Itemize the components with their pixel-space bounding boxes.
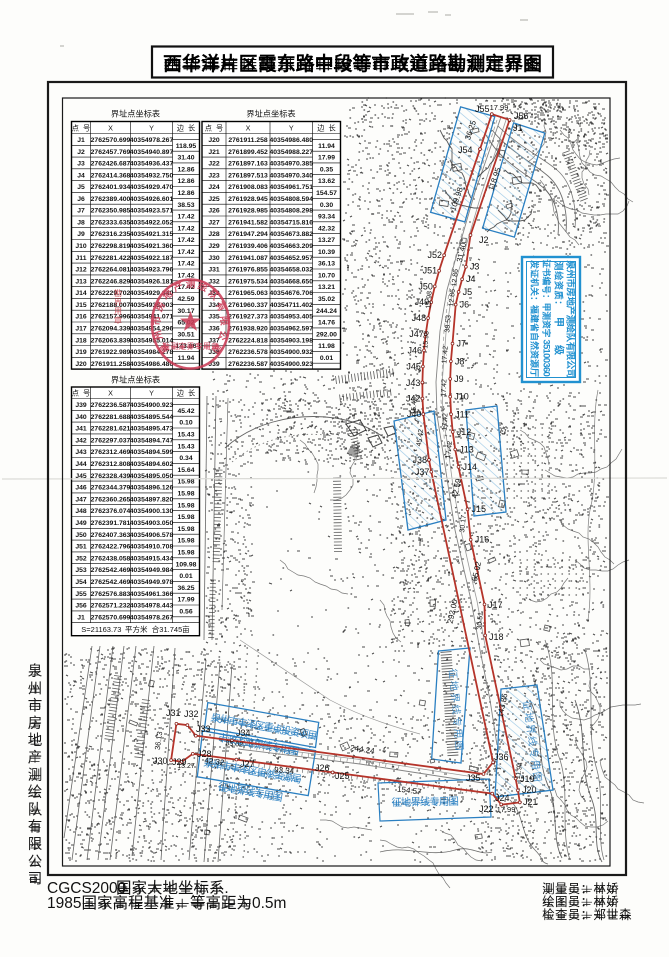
svg-text:118.95: 118.95	[176, 143, 197, 150]
svg-text:2762264.081: 2762264.081	[91, 267, 131, 274]
svg-text:J26: J26	[208, 208, 220, 215]
svg-text:J21: J21	[523, 797, 538, 807]
svg-text:17.99: 17.99	[497, 805, 516, 814]
svg-text:292.00: 292.00	[316, 331, 337, 338]
svg-text:X: X	[108, 388, 113, 397]
svg-text:边: 边	[177, 123, 184, 132]
svg-text:2762281.621: 2762281.621	[91, 426, 131, 433]
svg-text:福: 福	[530, 304, 541, 314]
svg-text:限: 限	[217, 316, 229, 327]
svg-text:长: 长	[328, 123, 335, 132]
svg-text:J14: J14	[463, 462, 478, 472]
svg-text:2762426.687: 2762426.687	[91, 161, 131, 168]
svg-text:界: 界	[114, 298, 122, 307]
svg-text:J46: J46	[407, 345, 422, 355]
svg-text:：: ：	[530, 296, 540, 305]
svg-text:40354970.340: 40354970.340	[270, 172, 314, 179]
svg-text:J2: J2	[479, 235, 489, 245]
svg-text:40354926.181: 40354926.181	[130, 278, 174, 285]
svg-text:2762312.808: 2762312.808	[91, 461, 131, 468]
svg-text:40354978.267: 40354978.267	[130, 614, 174, 621]
svg-text:J42: J42	[75, 437, 87, 444]
svg-text:J11: J11	[455, 409, 469, 419]
svg-text:2761941.582: 2761941.582	[228, 219, 268, 226]
svg-text:11.98: 11.98	[318, 343, 335, 350]
svg-text:40354949.984: 40354949.984	[130, 567, 174, 574]
svg-text:15.43: 15.43	[177, 443, 194, 450]
svg-text:17.42: 17.42	[177, 249, 194, 256]
svg-text:J43: J43	[75, 449, 87, 456]
svg-text:J33: J33	[196, 724, 211, 734]
svg-text:J8: J8	[455, 356, 465, 366]
svg-text:建: 建	[530, 313, 541, 323]
svg-text:测: 测	[186, 279, 196, 291]
svg-text:2761928.985: 2761928.985	[228, 208, 268, 215]
svg-text:2762298.819: 2762298.819	[91, 243, 131, 250]
svg-text:40354910.708: 40354910.708	[130, 544, 174, 551]
svg-text:40354921.360: 40354921.360	[130, 243, 174, 250]
svg-text:10.39: 10.39	[318, 249, 335, 256]
svg-text:边: 边	[317, 123, 324, 132]
svg-text:司: 司	[566, 369, 576, 378]
svg-text:S=21163.73: S=21163.73	[81, 625, 121, 634]
svg-text:2762542.469: 2762542.469	[91, 579, 131, 586]
svg-text:坐: 坐	[271, 110, 279, 119]
svg-text:J9: J9	[77, 231, 85, 238]
svg-text:J44: J44	[75, 461, 87, 468]
svg-text:12.86: 12.86	[177, 178, 194, 185]
svg-text:15.98: 15.98	[177, 550, 194, 557]
svg-text:2761976.855: 2761976.855	[228, 267, 268, 274]
svg-text:米: 米	[140, 624, 148, 634]
svg-text:2762457.769: 2762457.769	[91, 149, 131, 156]
svg-text:J9: J9	[454, 374, 464, 384]
svg-text:J39: J39	[75, 402, 87, 409]
svg-text:J20: J20	[522, 785, 537, 795]
svg-text:章: 章	[114, 315, 122, 325]
svg-text:甲: 甲	[553, 317, 565, 327]
svg-text:0.56: 0.56	[179, 609, 192, 616]
svg-text:J48: J48	[412, 313, 427, 323]
svg-text:J2: J2	[77, 149, 85, 156]
svg-text:J22: J22	[479, 804, 494, 814]
svg-text:30.17: 30.17	[177, 308, 194, 315]
svg-text:J22: J22	[208, 161, 220, 168]
svg-text:甲: 甲	[542, 303, 552, 312]
svg-text:点: 点	[127, 376, 135, 385]
svg-text:X: X	[246, 123, 251, 132]
svg-text:2762407.363: 2762407.363	[91, 532, 131, 539]
svg-text:2762297.037: 2762297.037	[91, 437, 131, 444]
svg-text:1985: 1985	[47, 895, 81, 912]
svg-text:15.64: 15.64	[177, 467, 194, 474]
svg-text:40354922.052: 40354922.052	[130, 219, 174, 226]
svg-text:31.745: 31.745	[159, 625, 182, 634]
svg-text:J20: J20	[75, 361, 87, 368]
svg-text:40354932.750: 40354932.750	[130, 172, 174, 179]
svg-text:X: X	[108, 123, 113, 132]
svg-text:40354953.405: 40354953.405	[270, 314, 314, 321]
svg-text:40354894.602: 40354894.602	[130, 461, 174, 468]
svg-text:12.86: 12.86	[177, 190, 194, 197]
svg-text:点: 点	[72, 123, 79, 132]
svg-text:机: 机	[530, 278, 541, 287]
svg-text:2761927.373: 2761927.373	[228, 314, 268, 321]
svg-text:J51: J51	[75, 544, 87, 551]
svg-text:93.34: 93.34	[274, 765, 295, 775]
svg-text:J7: J7	[77, 208, 85, 215]
svg-text:15.98: 15.98	[177, 514, 194, 521]
svg-text:42.32: 42.32	[318, 225, 335, 232]
svg-text:35.02: 35.02	[318, 296, 335, 303]
svg-text:0.10: 0.10	[179, 420, 192, 427]
svg-text:2761947.294: 2761947.294	[228, 231, 268, 238]
svg-text:40354711.402: 40354711.402	[270, 302, 313, 309]
svg-text:J36: J36	[494, 752, 509, 762]
svg-text:J28: J28	[208, 231, 220, 238]
svg-text:点: 点	[205, 123, 212, 132]
svg-text:40354922.187: 40354922.187	[130, 255, 174, 262]
svg-text:J31: J31	[166, 708, 181, 718]
svg-text:15.43: 15.43	[411, 397, 419, 415]
svg-text:40354949.978: 40354949.978	[130, 579, 174, 586]
svg-text:J12: J12	[75, 267, 87, 274]
svg-text:15.98: 15.98	[177, 538, 194, 545]
svg-text:2761975.534: 2761975.534	[228, 278, 268, 285]
svg-text:J23: J23	[208, 172, 220, 179]
svg-text:J40: J40	[75, 414, 87, 421]
svg-text:2761922.989: 2761922.989	[91, 349, 131, 356]
svg-text:2762391.781: 2762391.781	[91, 520, 131, 527]
svg-text:15.98: 15.98	[177, 491, 194, 498]
svg-text:154.57: 154.57	[316, 190, 337, 197]
svg-text:J38: J38	[412, 455, 427, 465]
svg-text:40354903.050: 40354903.050	[130, 520, 174, 527]
svg-text:40354652.957: 40354652.957	[270, 255, 314, 262]
svg-text:J17: J17	[488, 600, 503, 610]
svg-text:40354986.480: 40354986.480	[130, 361, 174, 368]
svg-text:J10: J10	[75, 243, 87, 250]
svg-text:J50: J50	[418, 281, 433, 291]
svg-text:J55: J55	[75, 591, 87, 598]
svg-text:号: 号	[216, 123, 223, 132]
svg-text:址: 址	[255, 109, 263, 119]
svg-text:点: 点	[72, 388, 79, 397]
svg-text:2762188.007: 2762188.007	[91, 302, 131, 309]
svg-text:J5: J5	[77, 184, 85, 191]
svg-text:源: 源	[530, 358, 541, 368]
svg-text:J8: J8	[77, 219, 85, 226]
svg-text:40354926.601: 40354926.601	[130, 196, 174, 203]
svg-text:40354895.544: 40354895.544	[130, 414, 174, 421]
svg-text:征: 征	[520, 700, 533, 712]
svg-text:40354903.198: 40354903.198	[270, 337, 314, 344]
svg-text:J43: J43	[406, 378, 421, 388]
svg-text:2762316.235: 2762316.235	[91, 231, 131, 238]
svg-text:勘: 勘	[114, 289, 122, 298]
svg-text:Y: Y	[289, 123, 294, 132]
svg-text:17.42: 17.42	[442, 413, 450, 431]
svg-text:号: 号	[83, 388, 90, 397]
svg-text:40354896.126: 40354896.126	[130, 485, 174, 492]
svg-text:：: ：	[542, 294, 552, 303]
svg-text:40354897.820: 40354897.820	[130, 496, 174, 503]
svg-text:2762360.265: 2762360.265	[91, 496, 131, 503]
svg-text:J30: J30	[153, 756, 168, 766]
svg-text:93.34: 93.34	[318, 214, 335, 221]
svg-text:2762571.232: 2762571.232	[91, 603, 131, 610]
svg-text:J11: J11	[76, 255, 87, 262]
svg-text:2761899.452: 2761899.452	[228, 149, 268, 156]
svg-text:11.94: 11.94	[178, 355, 195, 362]
svg-text:10.70: 10.70	[318, 272, 335, 279]
svg-text:40354929.470: 40354929.470	[130, 184, 174, 191]
svg-text:J54: J54	[75, 579, 87, 586]
svg-text:40354978.443: 40354978.443	[130, 603, 174, 610]
svg-text:亩: 亩	[182, 624, 190, 634]
svg-text:自: 自	[530, 332, 541, 341]
svg-text:J15: J15	[75, 302, 87, 309]
svg-text:17.99: 17.99	[318, 155, 335, 162]
svg-text:J17: J17	[75, 325, 87, 332]
svg-text:17.42: 17.42	[441, 379, 449, 397]
svg-text:Y: Y	[149, 123, 154, 132]
svg-text:地: 地	[447, 680, 461, 691]
svg-text:证: 证	[542, 259, 552, 268]
svg-text:0.30: 0.30	[320, 202, 333, 209]
svg-text:J51: J51	[423, 266, 438, 276]
svg-text:J6: J6	[460, 300, 470, 310]
svg-text:J12: J12	[457, 427, 472, 437]
svg-text:17.99: 17.99	[490, 103, 509, 112]
svg-text:有: 有	[566, 342, 577, 351]
svg-text:J13: J13	[75, 278, 87, 285]
svg-text:J15: J15	[472, 504, 487, 514]
svg-text:J24: J24	[208, 184, 220, 191]
svg-text:长: 长	[188, 123, 195, 132]
svg-text:J21: J21	[208, 149, 220, 156]
svg-text:40354961.751: 40354961.751	[270, 184, 314, 191]
svg-text:号: 号	[542, 285, 552, 294]
svg-text:J4: J4	[77, 172, 85, 179]
svg-text:标: 标	[279, 109, 287, 119]
svg-text:2761938.920: 2761938.920	[228, 325, 268, 332]
svg-text:J52: J52	[75, 555, 87, 562]
svg-text:40354900.923: 40354900.923	[270, 361, 314, 368]
svg-text:2761897.513: 2761897.513	[228, 172, 268, 179]
svg-text:40354894.599: 40354894.599	[130, 449, 174, 456]
svg-text:厅: 厅	[530, 368, 540, 377]
svg-text:11.94: 11.94	[318, 143, 335, 150]
svg-text:Y: Y	[149, 388, 154, 397]
svg-text:用: 用	[529, 759, 541, 770]
svg-text:40354676.706: 40354676.706	[270, 290, 314, 297]
svg-text:J3: J3	[470, 262, 480, 272]
svg-text:J10: J10	[454, 392, 469, 402]
svg-text:40354915.434: 40354915.434	[130, 555, 174, 562]
svg-text:0: 0	[541, 372, 552, 377]
svg-text:J16: J16	[75, 314, 87, 321]
svg-text:40354808.594: 40354808.594	[270, 196, 314, 203]
svg-text:图: 图	[452, 740, 465, 751]
svg-text:市: 市	[566, 279, 577, 288]
svg-text:17.42: 17.42	[177, 225, 194, 232]
svg-text:36.13: 36.13	[318, 261, 335, 268]
svg-text:109.98: 109.98	[176, 561, 197, 568]
svg-text:40354900.923: 40354900.923	[130, 402, 174, 409]
svg-text:2762246.829: 2762246.829	[91, 278, 131, 285]
svg-text:2762063.839: 2762063.839	[91, 337, 131, 344]
svg-text:J29: J29	[208, 243, 220, 250]
svg-text:13.62: 13.62	[318, 178, 335, 185]
svg-text:J14: J14	[75, 290, 87, 297]
svg-text:31.40: 31.40	[177, 155, 194, 162]
svg-text:州: 州	[566, 268, 576, 278]
svg-text:J7: J7	[457, 339, 467, 349]
svg-text:J1: J1	[77, 614, 85, 621]
svg-text:书: 书	[542, 268, 553, 277]
svg-text:J30: J30	[208, 255, 220, 262]
svg-text:J27: J27	[208, 219, 220, 226]
svg-text:资: 资	[542, 320, 553, 329]
svg-text:J54: J54	[458, 145, 473, 155]
svg-text:40354923.796: 40354923.796	[130, 267, 174, 274]
svg-text:2762570.699: 2762570.699	[91, 137, 131, 144]
svg-text:资: 资	[554, 281, 565, 290]
svg-text:40354658.032: 40354658.032	[270, 267, 314, 274]
svg-text:界: 界	[246, 110, 254, 119]
svg-text:然: 然	[530, 341, 541, 350]
svg-text:J24: J24	[495, 793, 510, 803]
svg-text:J41: J41	[75, 426, 87, 433]
svg-text:2761911.258: 2761911.258	[91, 361, 131, 368]
svg-text:30.51: 30.51	[177, 331, 194, 338]
svg-text:15.98: 15.98	[177, 502, 194, 509]
svg-text:17.99: 17.99	[177, 597, 194, 604]
svg-text:2762333.635: 2762333.635	[91, 219, 131, 226]
svg-text:界: 界	[111, 376, 119, 385]
svg-text:J13: J13	[459, 444, 474, 454]
svg-text:13.27: 13.27	[177, 763, 195, 770]
svg-text:号: 号	[83, 123, 90, 132]
svg-text:40354906.578: 40354906.578	[130, 532, 174, 539]
svg-text:0.01: 0.01	[179, 573, 192, 580]
svg-text:界: 界	[524, 724, 537, 736]
svg-text:绘: 绘	[554, 271, 565, 280]
svg-text:测: 测	[566, 315, 577, 324]
svg-text:2762422.796: 2762422.796	[91, 544, 131, 551]
svg-text:J45: J45	[406, 362, 421, 372]
svg-text:40354988.227: 40354988.227	[270, 149, 314, 156]
svg-text:资: 资	[530, 350, 541, 359]
svg-text:15.98: 15.98	[177, 479, 194, 486]
svg-text:J52: J52	[428, 250, 443, 260]
svg-text:坐: 坐	[135, 110, 143, 119]
svg-text:产: 产	[566, 306, 577, 315]
svg-text:J56: J56	[75, 603, 87, 610]
svg-text:2762570.699: 2762570.699	[91, 614, 131, 621]
svg-text:点: 点	[127, 110, 135, 119]
svg-text:J1: J1	[513, 123, 523, 133]
svg-text:用: 用	[451, 728, 463, 739]
svg-text:2761939.406: 2761939.406	[228, 243, 268, 250]
svg-text:40354895.473: 40354895.473	[130, 426, 174, 433]
svg-text:发: 发	[530, 259, 541, 269]
svg-text:J31: J31	[208, 267, 220, 274]
svg-text:编: 编	[542, 277, 553, 286]
svg-text:市: 市	[151, 315, 164, 326]
svg-text:J18: J18	[75, 337, 87, 344]
svg-text:J46: J46	[75, 485, 87, 492]
svg-text:字: 字	[542, 329, 553, 338]
svg-text:征: 征	[446, 668, 459, 679]
svg-text:测: 测	[542, 311, 553, 320]
svg-text:2762236.587: 2762236.587	[228, 361, 268, 368]
svg-text:J25: J25	[335, 771, 350, 781]
svg-text:边: 边	[177, 388, 184, 397]
svg-text:表: 表	[152, 375, 160, 385]
svg-text:2761960.337: 2761960.337	[228, 302, 268, 309]
svg-text:J6: J6	[77, 196, 85, 203]
svg-text:J47: J47	[409, 329, 424, 339]
svg-text:标: 标	[144, 375, 152, 385]
svg-text:用: 用	[114, 307, 122, 316]
svg-text:J26: J26	[315, 763, 330, 773]
svg-text:2762389.400: 2762389.400	[91, 196, 131, 203]
svg-text:38.53: 38.53	[177, 202, 194, 209]
svg-text:40354808.298: 40354808.298	[270, 208, 314, 215]
svg-text:J53: J53	[75, 567, 87, 574]
svg-text:J55: J55	[475, 104, 490, 114]
svg-text:2762344.379: 2762344.379	[91, 485, 131, 492]
svg-text:J20: J20	[208, 137, 220, 144]
svg-text:0.01: 0.01	[320, 355, 333, 362]
svg-text:13.21: 13.21	[318, 284, 335, 291]
svg-text:2762157.996: 2762157.996	[91, 314, 131, 321]
svg-text:J48: J48	[75, 508, 87, 515]
svg-text:2762281.688: 2762281.688	[91, 414, 131, 421]
svg-text:15.43: 15.43	[177, 432, 194, 439]
svg-text:J56: J56	[514, 111, 529, 121]
svg-text:2762312.469: 2762312.469	[91, 449, 131, 456]
svg-text:省: 省	[530, 322, 541, 332]
svg-text:J35: J35	[466, 773, 481, 783]
svg-text:40354936.437: 40354936.437	[130, 161, 174, 168]
svg-text:：: ：	[554, 300, 564, 309]
svg-text:40354961.366: 40354961.366	[130, 591, 174, 598]
svg-text:40354668.650: 40354668.650	[270, 278, 314, 285]
svg-text:12.86: 12.86	[177, 166, 194, 173]
svg-text:40354962.597: 40354962.597	[270, 325, 314, 332]
svg-text:2762542.469: 2762542.469	[91, 567, 131, 574]
svg-text:长: 长	[188, 388, 195, 397]
svg-text:标: 标	[144, 109, 152, 119]
svg-text:40354921.315: 40354921.315	[130, 231, 174, 238]
svg-text:专: 专	[450, 716, 464, 727]
svg-text:2761908.083: 2761908.083	[228, 184, 268, 191]
svg-text:级: 级	[553, 344, 566, 356]
svg-text:244.24: 244.24	[316, 308, 337, 315]
svg-text:42.59: 42.59	[177, 296, 194, 303]
svg-text:房: 房	[566, 288, 577, 297]
svg-text:40354900.932: 40354900.932	[270, 349, 314, 356]
svg-text:2762236.578: 2762236.578	[228, 349, 268, 356]
svg-text:40354970.385: 40354970.385	[270, 161, 314, 168]
svg-text:点: 点	[263, 110, 271, 119]
svg-text:表: 表	[287, 109, 295, 119]
svg-text:J19: J19	[75, 349, 87, 356]
svg-text:2762401.934: 2762401.934	[91, 184, 131, 191]
